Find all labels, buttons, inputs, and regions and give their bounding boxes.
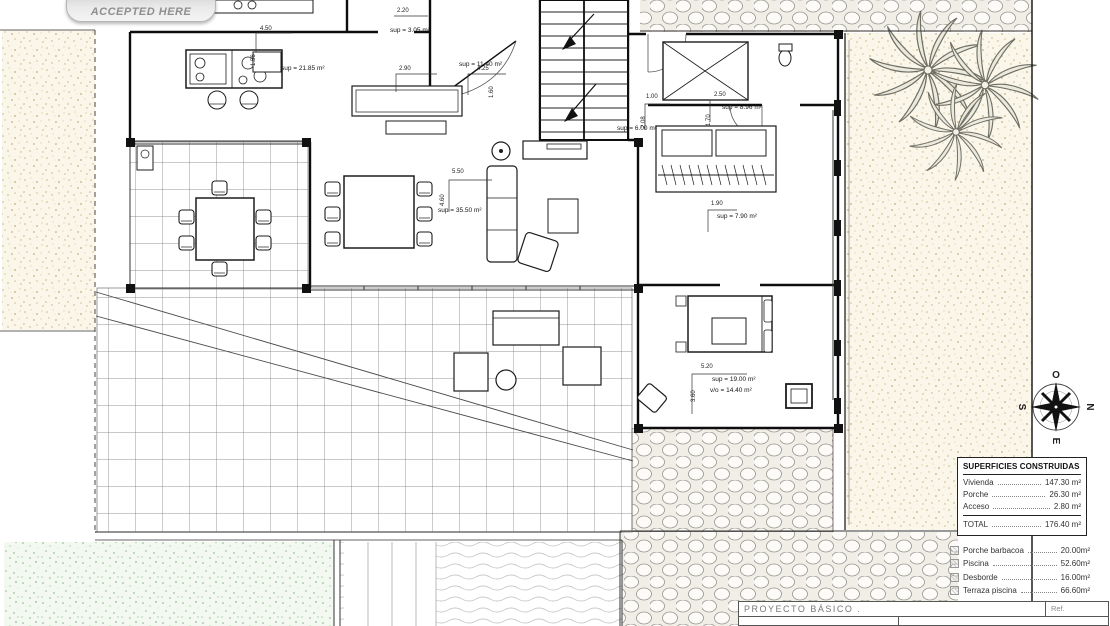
surface-row: Porche26.30 m² [963, 490, 1081, 499]
surface-value: 2.80 m² [1054, 502, 1081, 511]
surfaces-total-value: 176.40 m² [1045, 520, 1081, 529]
surface-label: Acceso [963, 502, 989, 511]
exterior-area-value: 52.60m² [1061, 559, 1090, 568]
dimension-label: 5.50 [452, 169, 464, 175]
surfaces-table-rows: Vivienda147.30 m²Porche26.30 m²Acceso2.8… [963, 478, 1081, 511]
accepted-here-label: ACCEPTED HERE [91, 6, 192, 18]
dot-leader [992, 496, 1045, 497]
compass-north-label: N [1084, 403, 1095, 410]
surface-value: 26.30 m² [1049, 490, 1081, 499]
texture-swatch-icon [950, 559, 959, 568]
compass-west-label: O [1052, 370, 1060, 381]
dimension-label: 1.56 [251, 54, 257, 66]
dimension-label: 1.00 [646, 94, 658, 100]
grass-area [4, 542, 334, 626]
exterior-area-value: 20.00m² [1061, 546, 1090, 555]
exterior-areas-list: Porche barbacoa20.00m²Piscina52.60m²Desb… [950, 541, 1090, 600]
texture-swatch-icon [950, 586, 959, 595]
surfaces-table: SUPERFICIES CONSTRUIDAS Vivienda147.30 m… [957, 457, 1087, 536]
stairs [540, 0, 628, 140]
compass-east-label: E [1050, 438, 1061, 445]
exterior-area-label: Terraza piscina [963, 586, 1017, 595]
title-block: PROYECTO BÁSICO . Ref. [738, 601, 1109, 626]
surfaces-table-title: SUPERFICIES CONSTRUIDAS [963, 460, 1081, 475]
area-label: v/o = 14.40 m² [710, 388, 752, 395]
dot-leader [992, 526, 1041, 527]
surface-label: Porche [963, 490, 988, 499]
compass-south-label: S [1016, 404, 1027, 411]
area-label: sup = 19.00 m² [712, 377, 756, 384]
dimension-label: 1.90 [711, 201, 723, 207]
exterior-area-label: Piscina [963, 559, 989, 568]
dimension-label: 1.60 [489, 86, 495, 98]
texture-swatch-icon [950, 573, 959, 582]
dot-leader [993, 508, 1050, 509]
area-label: sup = 7.90 m² [717, 214, 757, 221]
exterior-area-value: 66.60m² [1061, 586, 1090, 595]
surface-label: Vivienda [963, 478, 994, 487]
dot-leader [1021, 592, 1057, 593]
title-block-row2 [738, 617, 1109, 626]
exterior-area-row: Piscina52.60m² [950, 559, 1090, 568]
dimension-label: 4.25 [477, 66, 489, 72]
dot-leader [1002, 579, 1057, 580]
accepted-here-badge[interactable]: ACCEPTED HERE [66, 0, 216, 22]
dimension-label: 2.90 [399, 66, 411, 72]
dimension-label: 2.50 [714, 92, 726, 98]
dimension-label: 4.60 [440, 194, 446, 206]
texture-swatch-icon [950, 546, 959, 555]
surfaces-total-label: TOTAL [963, 520, 988, 529]
project-title: PROYECTO BÁSICO . [739, 602, 1046, 616]
exterior-area-row: Terraza piscina66.60m² [950, 586, 1090, 595]
dimension-label: 5.20 [701, 364, 713, 370]
surface-value: 147.30 m² [1045, 478, 1081, 487]
area-label: sup = 21.85 m² [281, 66, 325, 73]
exterior-area-row: Desborde16.00m² [950, 573, 1090, 582]
floor-plan-canvas: O N E S ACCEPTED HERE sup = 21.85 m²sup … [0, 0, 1110, 626]
dimension-label: 1.70 [706, 114, 712, 126]
exterior-area-row: Porche barbacoa20.00m² [950, 546, 1090, 555]
surface-row: Vivienda147.30 m² [963, 478, 1081, 487]
dot-leader [1028, 552, 1057, 553]
dot-leader [993, 565, 1057, 566]
ref-label: Ref. [1046, 602, 1108, 616]
exterior-area-label: Desborde [963, 573, 998, 582]
area-label: sup = 35.50 m² [438, 208, 482, 215]
dimension-label: 3.60 [691, 390, 697, 402]
surfaces-total-row: TOTAL 176.40 m² [963, 515, 1081, 529]
surface-row: Acceso2.80 m² [963, 502, 1081, 511]
dimension-label: 2.08 [641, 116, 647, 128]
area-label: sup = 8.96 m² [722, 105, 762, 112]
exterior-area-label: Porche barbacoa [963, 546, 1024, 555]
dot-leader [998, 484, 1041, 485]
dimension-label: 4.50 [260, 26, 272, 32]
exterior-area-value: 16.00m² [1061, 573, 1090, 582]
area-label: sup = 3.05 m² [390, 28, 430, 35]
floor-plan-drawing: O N E S [0, 0, 1110, 626]
area-label: sup = 6.00 m² [617, 126, 657, 133]
dimension-label: 2.20 [397, 8, 409, 14]
